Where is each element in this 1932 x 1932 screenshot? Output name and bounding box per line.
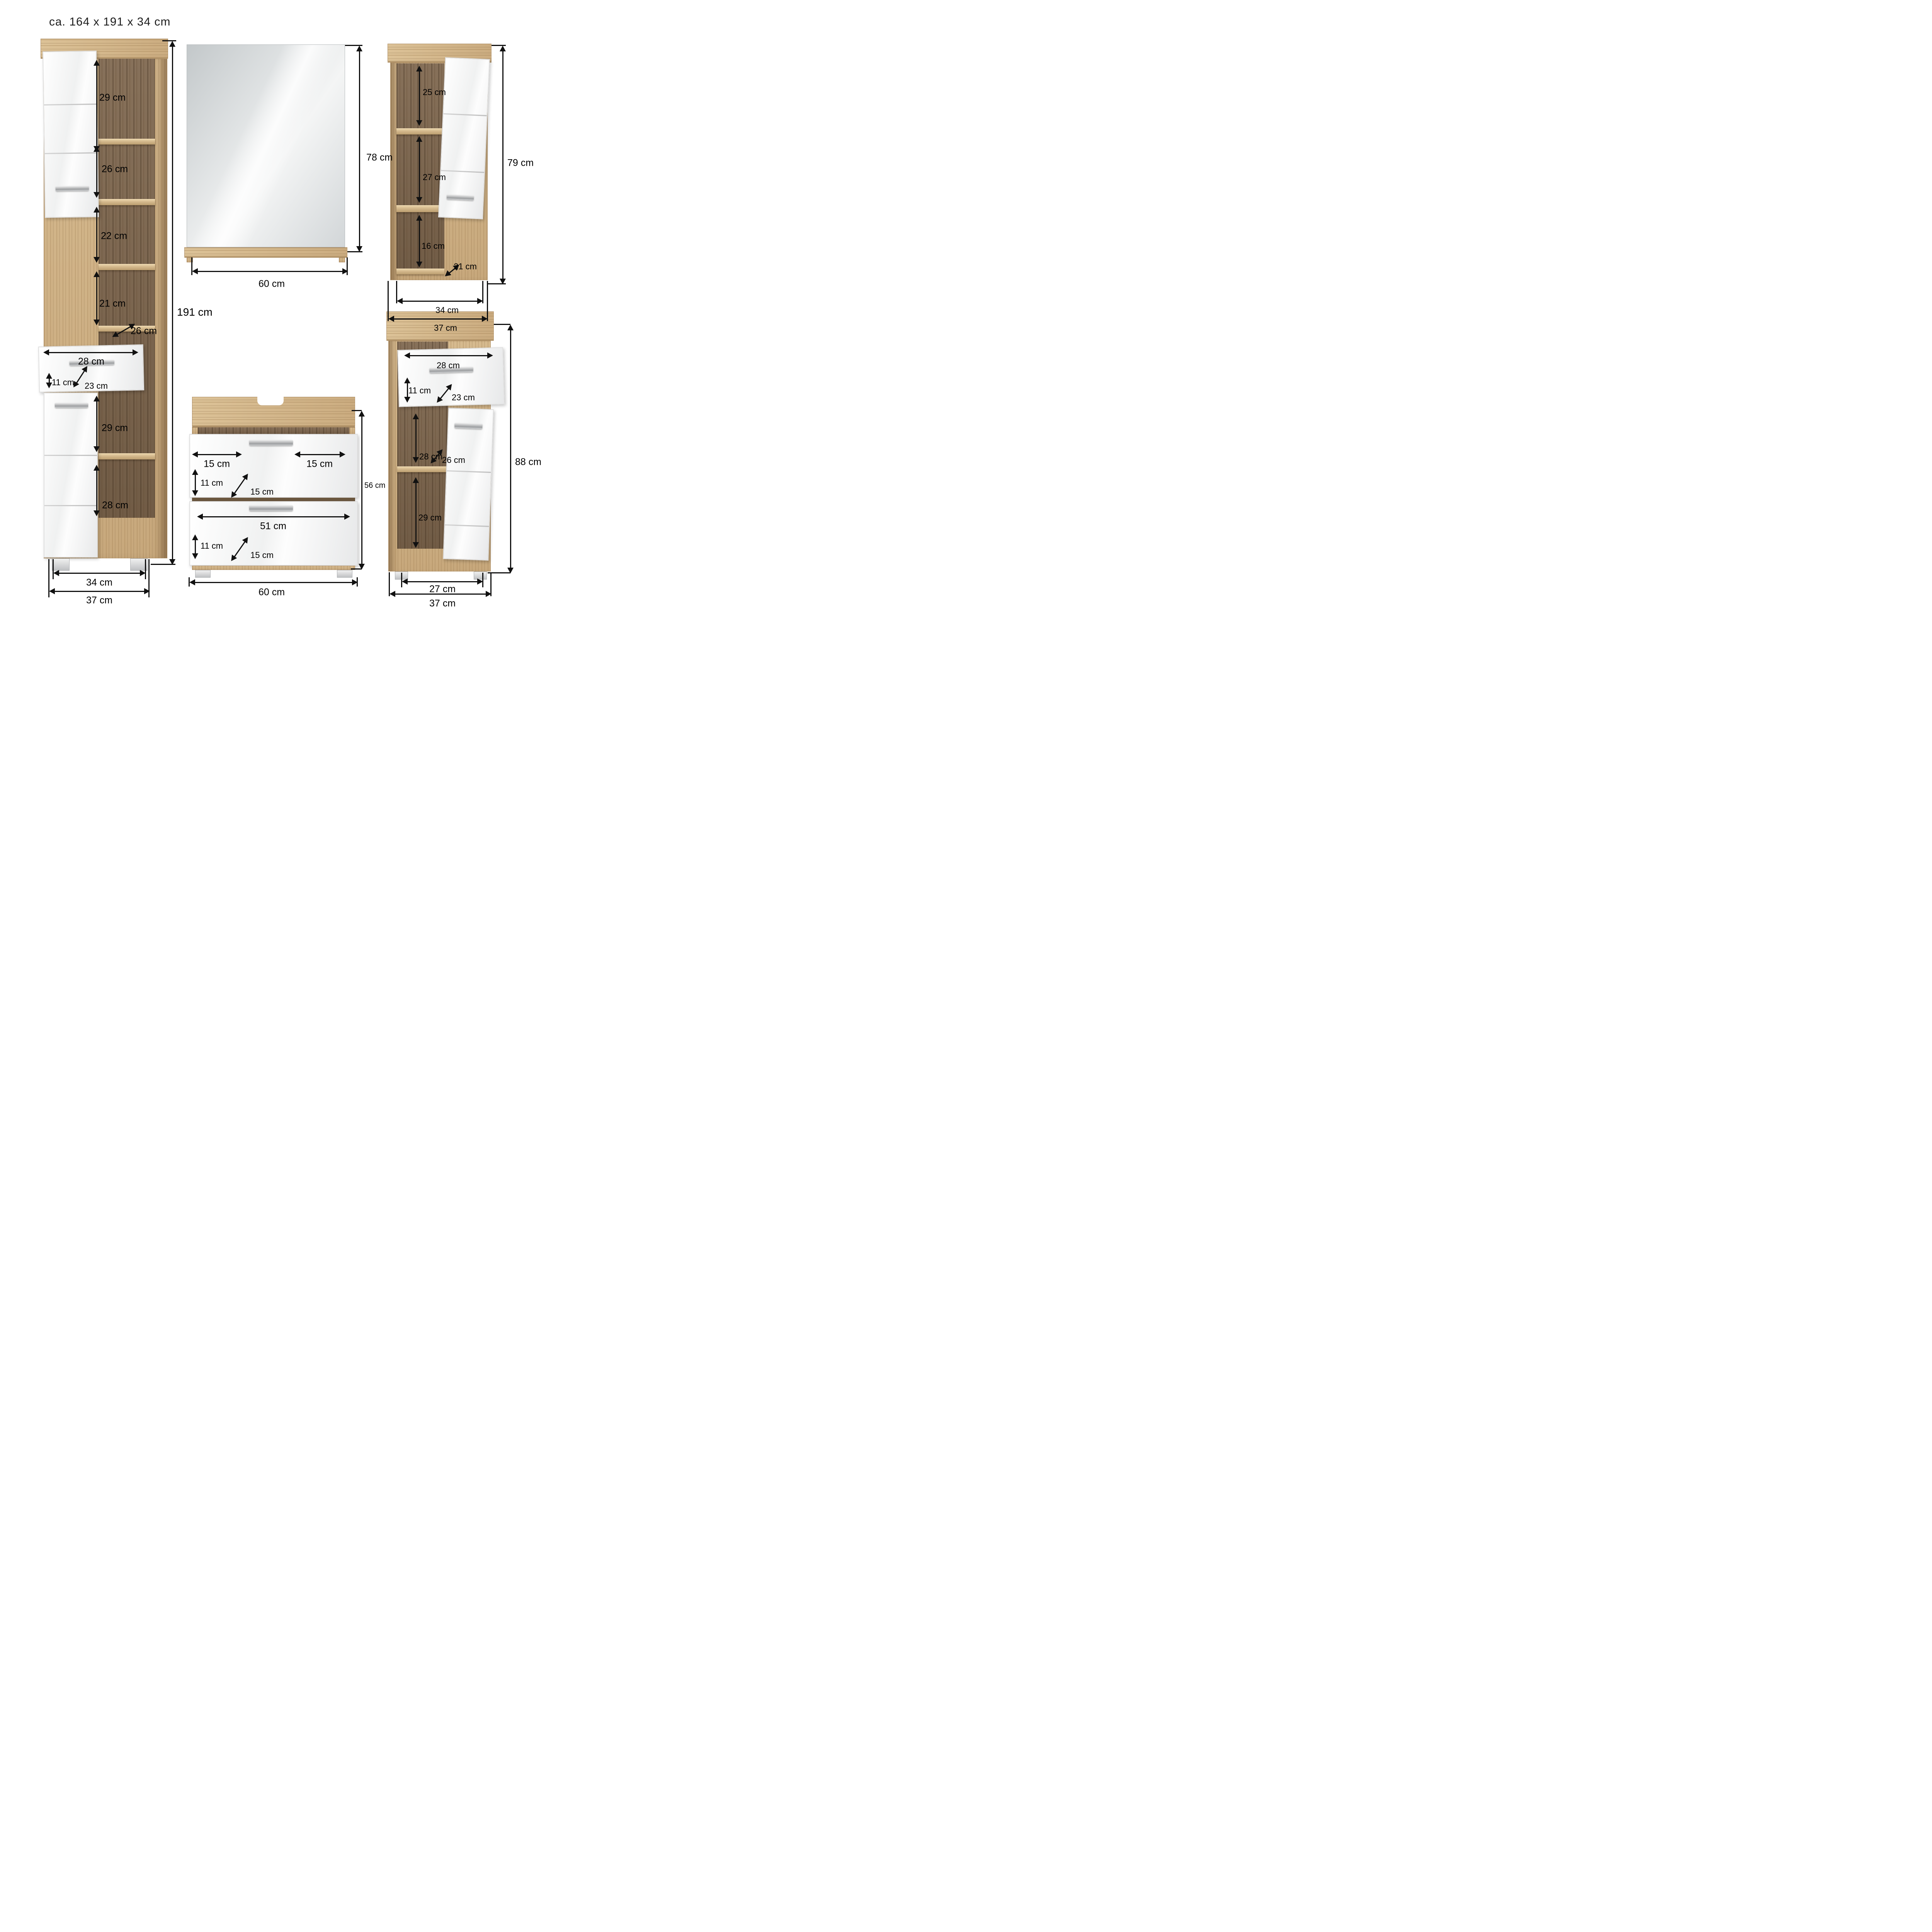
basin-front-right-label: 15 cm <box>306 459 333 470</box>
side-width-label: 37 cm <box>429 598 456 609</box>
basin-height-arrow <box>359 411 365 570</box>
wall-width-ext-left <box>388 281 389 321</box>
tall-compartment-6-arrow <box>94 465 100 516</box>
side-drawer-depth-arrow <box>434 382 454 405</box>
basin-width-label: 60 cm <box>259 587 285 598</box>
dimension-layer: 29 cm 26 cm 22 cm 21 cm 26 cm 28 cm 11 c… <box>0 0 541 608</box>
basin-front-1-height-arrow <box>192 469 198 496</box>
wall-width-ext-right <box>487 281 488 321</box>
wall-compartment-1-arrow <box>416 66 422 126</box>
tall-total-width-label: 37 cm <box>86 595 112 606</box>
tall-feet-span-arrow <box>53 570 146 576</box>
wall-compartment-2-label: 27 cm <box>423 172 446 182</box>
tall-compartment-6-label: 28 cm <box>102 500 128 511</box>
side-drawer-width-arrow <box>404 352 493 359</box>
side-drawer-width-label: 28 cm <box>437 361 460 371</box>
basin-front-2-width-arrow <box>197 514 350 520</box>
basin-front-right-arrow <box>294 451 345 457</box>
side-drawer-depth-label: 23 cm <box>452 393 475 403</box>
side-height-label: 88 cm <box>515 457 541 468</box>
wall-compartment-1-label: 25 cm <box>423 87 446 97</box>
mirror-height-arrow <box>356 46 362 252</box>
tall-compartment-1-label: 29 cm <box>99 92 126 104</box>
wall-width-label: 37 cm <box>434 323 457 333</box>
basin-height-label: 56 cm <box>364 481 385 490</box>
tall-feet-ext-line-left <box>53 559 54 579</box>
basin-front-2-width-label: 51 cm <box>260 521 286 532</box>
tall-compartment-4-arrow <box>94 271 100 325</box>
tall-compartment-2-label: 26 cm <box>102 164 128 175</box>
tall-drawer-depth-label: 23 cm <box>85 381 108 391</box>
basin-front-2-height-label: 11 cm <box>201 541 223 551</box>
basin-front-1-depth-label: 15 cm <box>250 487 274 497</box>
tall-compartment-5-label: 29 cm <box>102 423 128 434</box>
tall-total-width-arrow <box>49 588 150 594</box>
tall-compartment-5-arrow <box>94 396 100 452</box>
tall-compartment-3-label: 22 cm <box>101 231 127 242</box>
wall-depth-label: 21 cm <box>454 262 477 272</box>
wall-height-label: 79 cm <box>507 158 534 169</box>
basin-width-arrow <box>189 579 358 585</box>
tall-compartment-2-arrow <box>94 146 100 198</box>
tall-compartment-1-arrow <box>94 60 100 152</box>
wall-height-arrow <box>500 46 506 284</box>
basin-front-1-depth-arrow <box>229 472 251 499</box>
tall-drawer-height-arrow <box>46 373 52 388</box>
side-compartment-2-arrow <box>413 477 419 548</box>
wall-compartment-2-arrow <box>416 136 422 203</box>
basin-front-2-height-arrow <box>192 534 198 559</box>
side-shelf-depth-label: 26 cm <box>442 455 465 465</box>
basin-front-1-height-label: 11 cm <box>201 478 223 488</box>
tall-shelf-depth-label: 26 cm <box>131 326 157 337</box>
tall-total-height-label: 191 cm <box>177 306 213 318</box>
mirror-width-arrow <box>192 268 348 274</box>
mirror-height-label: 78 cm <box>366 152 393 163</box>
side-drawer-height-label: 11 cm <box>408 386 431 396</box>
basin-front-left-arrow <box>192 451 242 457</box>
side-height-arrow <box>507 325 514 573</box>
tall-feet-span-label: 34 cm <box>86 577 112 588</box>
wall-inner-width-label: 34 cm <box>435 305 459 315</box>
wall-inner-width-arrow <box>397 298 483 304</box>
tall-compartment-4-label: 21 cm <box>99 298 126 310</box>
tall-drawer-width-arrow <box>43 349 138 355</box>
tall-drawer-height-label: 11 cm <box>52 378 74 388</box>
tall-total-height-arrow <box>169 41 175 565</box>
tall-compartment-3-arrow <box>94 207 100 263</box>
side-compartment-1-arrow <box>413 413 419 463</box>
wall-compartment-3-label: 16 cm <box>422 241 445 251</box>
side-compartment-2-label: 29 cm <box>418 513 442 523</box>
tall-feet-ext-line-right <box>145 559 146 579</box>
wall-width-arrow <box>388 316 488 322</box>
basin-front-left-label: 15 cm <box>204 459 230 470</box>
side-width-arrow <box>389 591 492 597</box>
basin-front-2-depth-arrow <box>229 535 251 563</box>
furniture-dimension-diagram: ca. 164 x 191 x 34 cm <box>0 0 541 608</box>
mirror-width-label: 60 cm <box>259 279 285 290</box>
tall-drawer-width-label: 28 cm <box>78 356 104 367</box>
basin-front-2-depth-label: 15 cm <box>250 550 274 560</box>
